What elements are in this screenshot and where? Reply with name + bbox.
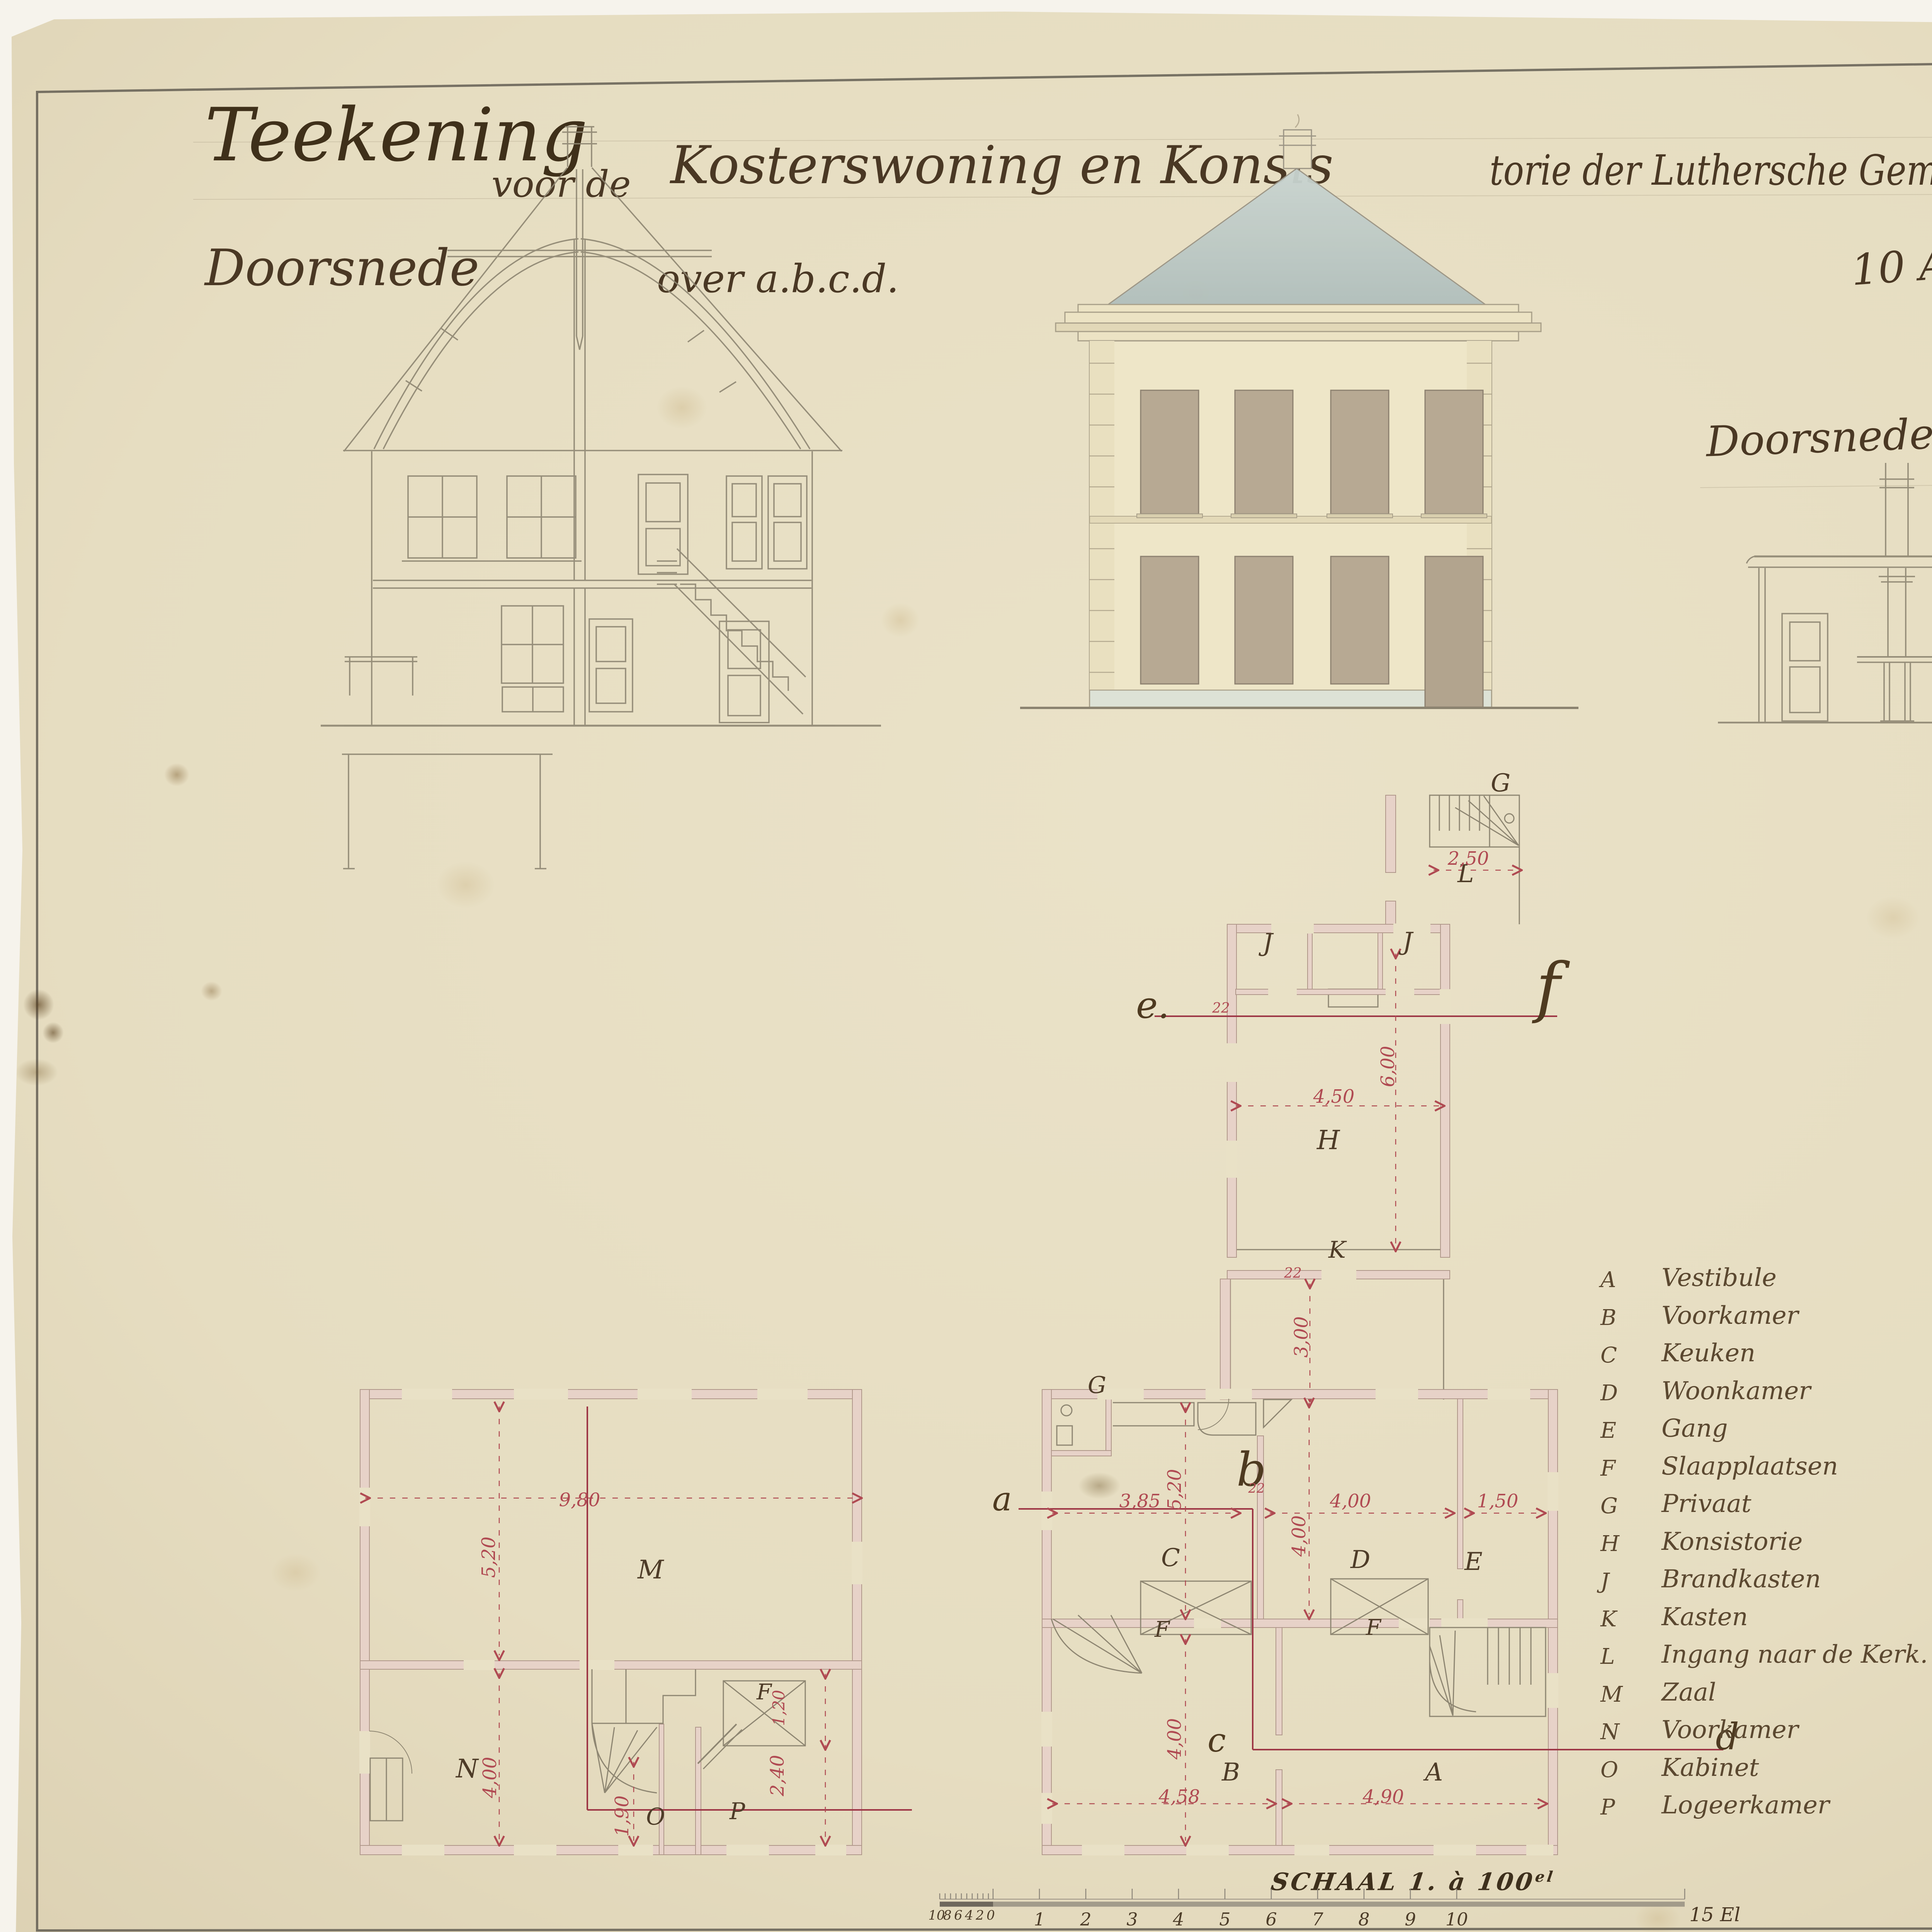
legend-letter: A [1600,1269,1616,1291]
room-label: J [1263,930,1273,955]
legend-letter: G [1600,1495,1618,1517]
dimension-label: 4,00 [1290,1515,1308,1557]
legend-letter: B [1600,1307,1616,1329]
room-label: D [1350,1548,1370,1572]
room-label: M [638,1557,664,1583]
legend-room-name: Gang [1662,1416,1728,1441]
legend-letter: K [1600,1609,1617,1630]
room-label: G [1491,771,1510,796]
section-letter: c [1207,1724,1226,1757]
legend-room-name: Kasten [1662,1605,1748,1629]
room-label: A [1425,1760,1443,1785]
legend-letter: J [1600,1571,1609,1592]
dimension-label: 4,00 [481,1757,499,1798]
section-abcd-drawing [301,108,896,900]
legend-room-name: Keuken [1662,1341,1755,1366]
room-label: J [1403,929,1413,954]
room-label: H [1317,1128,1340,1154]
dimension-label: 1,90 [613,1796,631,1837]
dimension-label: 22 [1212,1002,1230,1015]
dimension-label: 6,00 [1379,1046,1397,1087]
plan-verdieping [348,1368,935,1886]
scale-subdivision-number: 10 [928,1909,945,1922]
room-label: E [1464,1549,1483,1574]
dimension-label: 2,40 [768,1755,787,1796]
legend-room-name: Woonkamer [1662,1379,1811,1403]
dimension-label: 2,50 [1448,849,1489,868]
scale-bar [927,1878,1739,1932]
legend-room-name: Slaapplaatsen [1662,1454,1838,1479]
legend-room-name: Voorkamer [1662,1303,1798,1328]
room-label: F [1155,1619,1170,1641]
scale-subdivision-number: 0 [986,1909,995,1922]
dimension-label: 4,90 [1363,1787,1404,1806]
legend-room-name: Vestibule [1662,1265,1777,1290]
drawing-paper: Teekening voor de Kosterswoning en Konsi… [0,0,1932,1932]
legend-letter: C [1600,1345,1617,1366]
dimension-label: 9,80 [559,1491,600,1509]
dimension-label: 5,20 [480,1537,498,1578]
scale-unit-number: 9 [1405,1910,1416,1928]
section-ef-drawing [1712,452,1932,761]
dimension-label: 5,20 [1165,1469,1184,1510]
legend-letter: H [1600,1533,1619,1555]
scale-subdivision-number: 4 [965,1909,973,1922]
section-letter: e. [1136,987,1169,1024]
dimension-label: 22 [1284,1267,1302,1281]
scale-unit-number: 7 [1312,1910,1323,1928]
legend-room-name: Ingang naar de Kerk. [1662,1642,1928,1667]
dimension-label: 4,00 [1165,1718,1184,1760]
legend-letter: P [1600,1797,1615,1818]
dimension-label: 1,50 [1477,1492,1519,1510]
room-label: K [1328,1238,1346,1262]
legend-letter: E [1600,1420,1616,1442]
dimension-label: 3,00 [1292,1316,1311,1358]
dimension-label: 1,20 [771,1690,787,1726]
section-letter: a [992,1483,1012,1516]
room-label: F [1366,1617,1381,1639]
legend-room-name: Privaat [1662,1492,1751,1516]
scale-subdivision-number: 6 [954,1909,963,1922]
room-label: N [456,1756,478,1782]
scale-unit-number: 2 [1080,1910,1091,1928]
legend-room-name: Logeerkamer [1662,1793,1829,1818]
scale-unit-number: 5 [1219,1910,1230,1928]
section-letter: f [1536,954,1560,1020]
legend-room-name: Brandkasten [1662,1567,1821,1592]
scale-end-label: 15 El [1689,1905,1740,1924]
scale-unit-number: 8 [1358,1910,1369,1928]
legend-letter: L [1600,1646,1615,1668]
room-label: O [646,1805,665,1828]
dimension-label: 3,85 [1119,1492,1161,1510]
scale-subdivision-number: 8 [943,1909,952,1922]
elevation-drawing [985,116,1604,753]
dimension-label: 4,00 [1330,1492,1371,1510]
scale-subdivision-number: 2 [976,1909,984,1922]
scanned-sheet: GAD 0 552/230 015 Teekening [0,0,1932,1932]
legend-room-name: Voorkamer [1662,1718,1798,1742]
scale-unit-number: 4 [1173,1910,1184,1928]
room-label: B [1222,1760,1240,1785]
dimension-label: 4,58 [1159,1787,1200,1806]
scale-unit-number: 6 [1265,1910,1277,1928]
legend-letter: D [1600,1383,1618,1404]
room-label: P [730,1800,745,1823]
legend-room-name: Kabinet [1662,1755,1759,1780]
dimension-label: 22 [1248,1482,1265,1495]
scale-unit-number: 10 [1446,1910,1468,1928]
legend-room-name: Zaal [1662,1680,1716,1705]
legend-letter: O [1600,1759,1618,1781]
room-label: C [1161,1546,1180,1570]
room-label: G [1088,1374,1106,1397]
scale-unit-number: 1 [1034,1910,1045,1928]
legend-room-name: Konsistorie [1662,1529,1803,1554]
scale-unit-number: 3 [1126,1910,1138,1928]
legend-letter: M [1600,1684,1622,1706]
dimension-label: 4,50 [1313,1087,1355,1106]
legend-letter: F [1600,1458,1616,1480]
legend-letter: N [1600,1721,1619,1743]
